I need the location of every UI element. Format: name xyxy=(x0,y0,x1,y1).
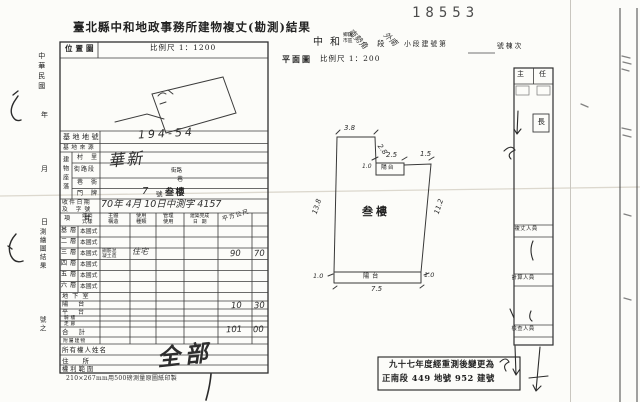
door-plate-label: 門牌 xyxy=(77,191,105,198)
dim-balcony-width: 2.5 xyxy=(386,152,397,160)
paper-spec-footnote: 210×267mm用500磅測量原圖紙印製 xyxy=(66,376,177,383)
floor-plan-scale: 比例尺 1：200 xyxy=(320,55,380,63)
row-floor-1: 基層 xyxy=(60,228,80,235)
row-floor-6: 六層 xyxy=(60,283,80,290)
location-map-label: 位置圖 xyxy=(65,45,97,53)
row-style-5: 本國式 xyxy=(80,273,97,279)
dim-bottom-left: 1.0 xyxy=(313,273,323,280)
dim-bottom-right: 1.0 xyxy=(424,272,434,279)
col-header-area: 平方公尺 xyxy=(222,209,251,223)
margin-month-label: 月 xyxy=(41,166,48,174)
col-header-item: 項 目 xyxy=(62,216,98,223)
plan-balcony-top-label: 陽台 xyxy=(381,165,395,171)
area-3f-dec: 70 xyxy=(253,249,264,259)
edge-strip-smudges xyxy=(581,56,631,300)
row-corridor: 走廊 xyxy=(64,322,77,327)
margin-day-label: 日 xyxy=(41,219,48,227)
dim-balcony-right: 1.5 xyxy=(420,151,431,159)
plan-section-label: 段 xyxy=(377,40,385,48)
rights-scope-label: 權利範圍 xyxy=(62,367,95,374)
owner-name-label: 所有權人姓名 xyxy=(62,347,107,354)
col-header-style-2: 式樣 xyxy=(82,220,92,226)
sign-role-checker: 檢查人員 xyxy=(512,327,535,333)
street-suffix: 街路 xyxy=(171,168,182,174)
structure-stamp-line2: 凝土造 xyxy=(102,254,116,259)
dim-balcony-height: 1.0 xyxy=(362,164,372,171)
receipt-date-label: 收件日期 xyxy=(62,200,91,206)
row-style-3: 本國式 xyxy=(80,251,97,257)
area-total-int: 101 xyxy=(226,325,243,335)
sign-chief-label: 長 xyxy=(538,118,546,126)
sign-role-calculator: 計算人員 xyxy=(512,276,535,282)
dim-top: 3.8 xyxy=(344,125,355,133)
row-attached: 附屬建物 xyxy=(63,339,86,344)
plan-building-no-suffix: 號棟次 xyxy=(497,43,523,50)
sign-head-left: 主 xyxy=(517,71,524,79)
row-balcony: 陽台 xyxy=(62,302,94,309)
area-3f-int: 90 xyxy=(230,249,241,259)
scanned-survey-form: 臺北縣中和地政事務所建物複丈(勘測)結果 18553 中華民國 年 月 日 測繪… xyxy=(0,0,640,402)
col-header-completed-1: 建築完成 xyxy=(190,214,209,219)
serial-number-stamp: 18553 xyxy=(412,6,479,21)
lane-suffix: 巷 xyxy=(177,177,183,184)
floor-plan-label: 平面圖 xyxy=(282,55,312,64)
receipt-value: 70年 4月 10日中測字 4157 xyxy=(101,200,221,210)
remeasure-stamp-line1: 九十七年度經重測後變更為 xyxy=(389,360,495,369)
village-label: 村里 xyxy=(77,155,105,162)
rights-value-descender-stroke xyxy=(206,374,211,400)
margin-survey-result-label: 測繪圖結果 xyxy=(38,228,45,271)
location-sketch xyxy=(115,77,236,133)
row-style-4: 本國式 xyxy=(80,262,97,268)
form-title: 臺北縣中和地政事務所建物複丈(勘測)結果 xyxy=(73,21,311,34)
situs-label: 建物座落 xyxy=(61,156,68,192)
use-type-value: 住宅 xyxy=(132,248,148,257)
lot-number-label: 基地地號 xyxy=(63,134,101,142)
lot-source-label: 基地來源 xyxy=(63,145,96,151)
signoff-handwritten-marks xyxy=(500,111,548,391)
remeasure-stamp-line2: 正南段 449 地號 952 建號 xyxy=(382,374,495,383)
dim-bottom-width: 7.5 xyxy=(371,286,382,294)
row-floor-5: 五層 xyxy=(60,272,80,279)
row-floor-2: 二層 xyxy=(60,239,80,246)
dim-left-side: 13.8 xyxy=(312,198,324,215)
lot-number-value: 194-54 xyxy=(138,127,196,142)
margin-year-label: 年 xyxy=(41,112,48,120)
area-balcony-dec: 30 xyxy=(253,301,264,311)
receipt-no-label: 及 字號 xyxy=(62,207,93,213)
area-balcony-int: 10 xyxy=(231,301,242,311)
row-basement: 地下室 xyxy=(62,294,93,301)
row-floor-4: 四層 xyxy=(60,261,80,268)
margin-handwritten-marks xyxy=(8,91,23,262)
row-style-6: 本國式 xyxy=(80,284,97,290)
street-name-value: 華新 xyxy=(107,149,144,170)
door-number-value: 7 xyxy=(142,186,148,197)
col-header-use-2: 種類 xyxy=(136,220,146,226)
lane-label: 巷衖 xyxy=(77,180,105,187)
col-header-structure-2: 構造 xyxy=(108,220,118,226)
area-total-dec: 00 xyxy=(253,325,264,335)
dim-right-side: 11.2 xyxy=(434,198,446,215)
street-label: 街路段 xyxy=(74,167,95,174)
plan-city-char-1: 中 xyxy=(313,37,323,48)
margin-era-label: 中華民國 xyxy=(37,52,45,92)
plan-room-label: 叁樓 xyxy=(362,206,390,218)
plan-subsection-label: 小段建號第 xyxy=(404,41,448,48)
rights-scope-value: 全部 xyxy=(156,341,214,372)
row-arcade: 騎樓 xyxy=(64,316,77,321)
sign-head-right: 任 xyxy=(539,71,546,79)
row-style-1: 本國式 xyxy=(80,229,97,235)
col-header-completed-2: 日期 xyxy=(193,220,211,225)
sign-role-surveyor: 複丈人員 xyxy=(515,227,538,233)
plan-city-char-2: 和 xyxy=(330,37,340,48)
address-label: 住所 xyxy=(62,358,103,365)
row-floor-3: 三層 xyxy=(60,250,80,257)
location-map-scale: 比例尺 1：1200 xyxy=(150,44,216,52)
door-unit-label: 號 xyxy=(156,191,163,198)
col-header-manage-2: 使用 xyxy=(163,220,173,226)
floor-stamp: 叁樓 xyxy=(165,189,186,199)
row-total: 合計 xyxy=(62,329,95,336)
margin-number-suffix: 號之 xyxy=(38,316,45,333)
row-style-2: 本國式 xyxy=(80,240,97,246)
plan-balcony-bottom-label: 陽台 xyxy=(363,274,381,281)
